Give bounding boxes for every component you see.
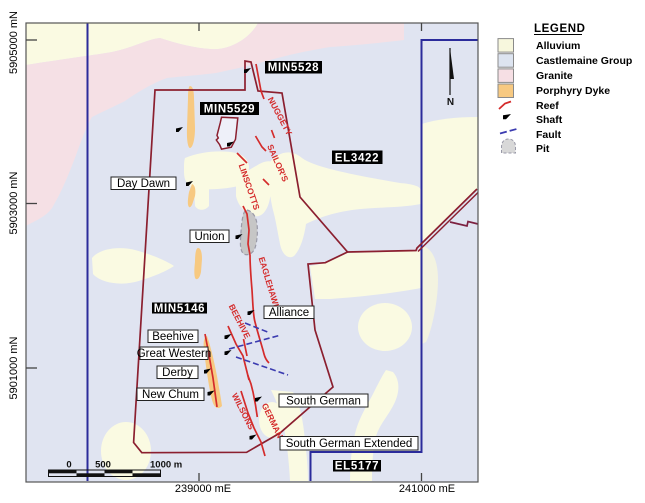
- svg-text:Pit: Pit: [536, 143, 550, 155]
- svg-text:Porphyry Dyke: Porphyry Dyke: [536, 85, 610, 97]
- svg-text:EL5177: EL5177: [335, 461, 379, 473]
- svg-text:MIN5146: MIN5146: [154, 303, 206, 315]
- svg-text:Alluvium: Alluvium: [536, 40, 580, 52]
- svg-text:New Chum: New Chum: [142, 389, 199, 401]
- svg-text:LEGEND: LEGEND: [534, 23, 586, 35]
- svg-text:Granite: Granite: [536, 70, 573, 82]
- svg-text:241000 mE: 241000 mE: [399, 483, 455, 495]
- svg-text:239000 mE: 239000 mE: [175, 483, 231, 495]
- svg-text:Castlemaine Group: Castlemaine Group: [536, 55, 632, 67]
- svg-text:Alliance: Alliance: [269, 307, 309, 319]
- svg-text:Derby: Derby: [162, 367, 193, 379]
- svg-text:500: 500: [95, 460, 111, 471]
- svg-text:South German: South German: [286, 396, 361, 408]
- svg-text:N: N: [447, 97, 454, 108]
- svg-text:1000 m: 1000 m: [150, 460, 182, 471]
- svg-text:Day Dawn: Day Dawn: [117, 178, 170, 190]
- svg-text:Beehive: Beehive: [152, 331, 194, 343]
- svg-text:0: 0: [66, 460, 71, 471]
- svg-text:Great Western: Great Western: [137, 348, 212, 360]
- svg-text:5903000 mN: 5903000 mN: [8, 171, 20, 234]
- svg-text:5901000 mN: 5901000 mN: [8, 336, 20, 399]
- svg-text:MIN5528: MIN5528: [268, 62, 320, 74]
- svg-text:Shaft: Shaft: [536, 114, 563, 126]
- svg-text:MIN5529: MIN5529: [204, 104, 256, 116]
- svg-text:5905000 mN: 5905000 mN: [8, 11, 20, 74]
- svg-text:EL3422: EL3422: [335, 153, 379, 165]
- svg-text:Reef: Reef: [536, 100, 559, 112]
- svg-text:Union: Union: [194, 231, 224, 243]
- svg-text:Fault: Fault: [536, 129, 562, 141]
- svg-text:South German Extended: South German Extended: [286, 438, 413, 450]
